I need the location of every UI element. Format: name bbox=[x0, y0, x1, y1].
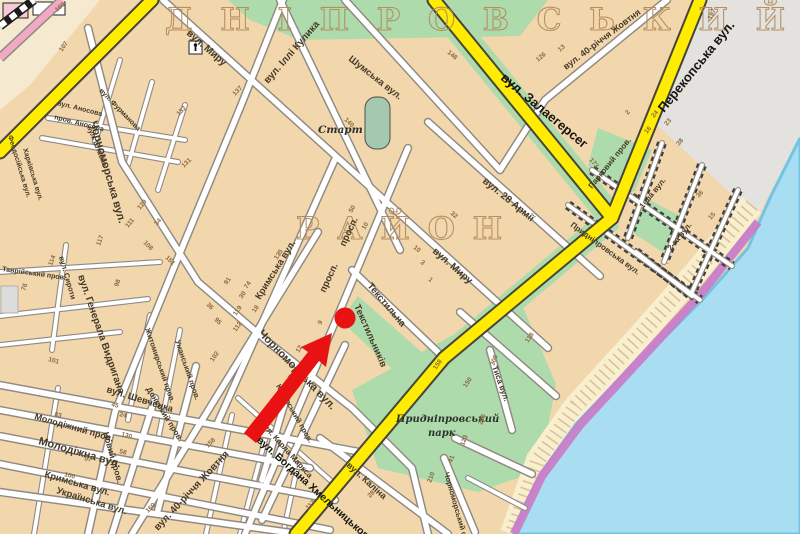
map-label: парк bbox=[428, 428, 456, 439]
city-map[interactable]: Д Н І П Р О В С Ь К И Й Р А Й О Н вул. М… bbox=[0, 0, 800, 534]
map-label: Старт bbox=[318, 124, 363, 136]
marker-circle-icon bbox=[335, 308, 356, 329]
stadium-start bbox=[365, 97, 390, 149]
building-gray bbox=[1, 286, 18, 313]
